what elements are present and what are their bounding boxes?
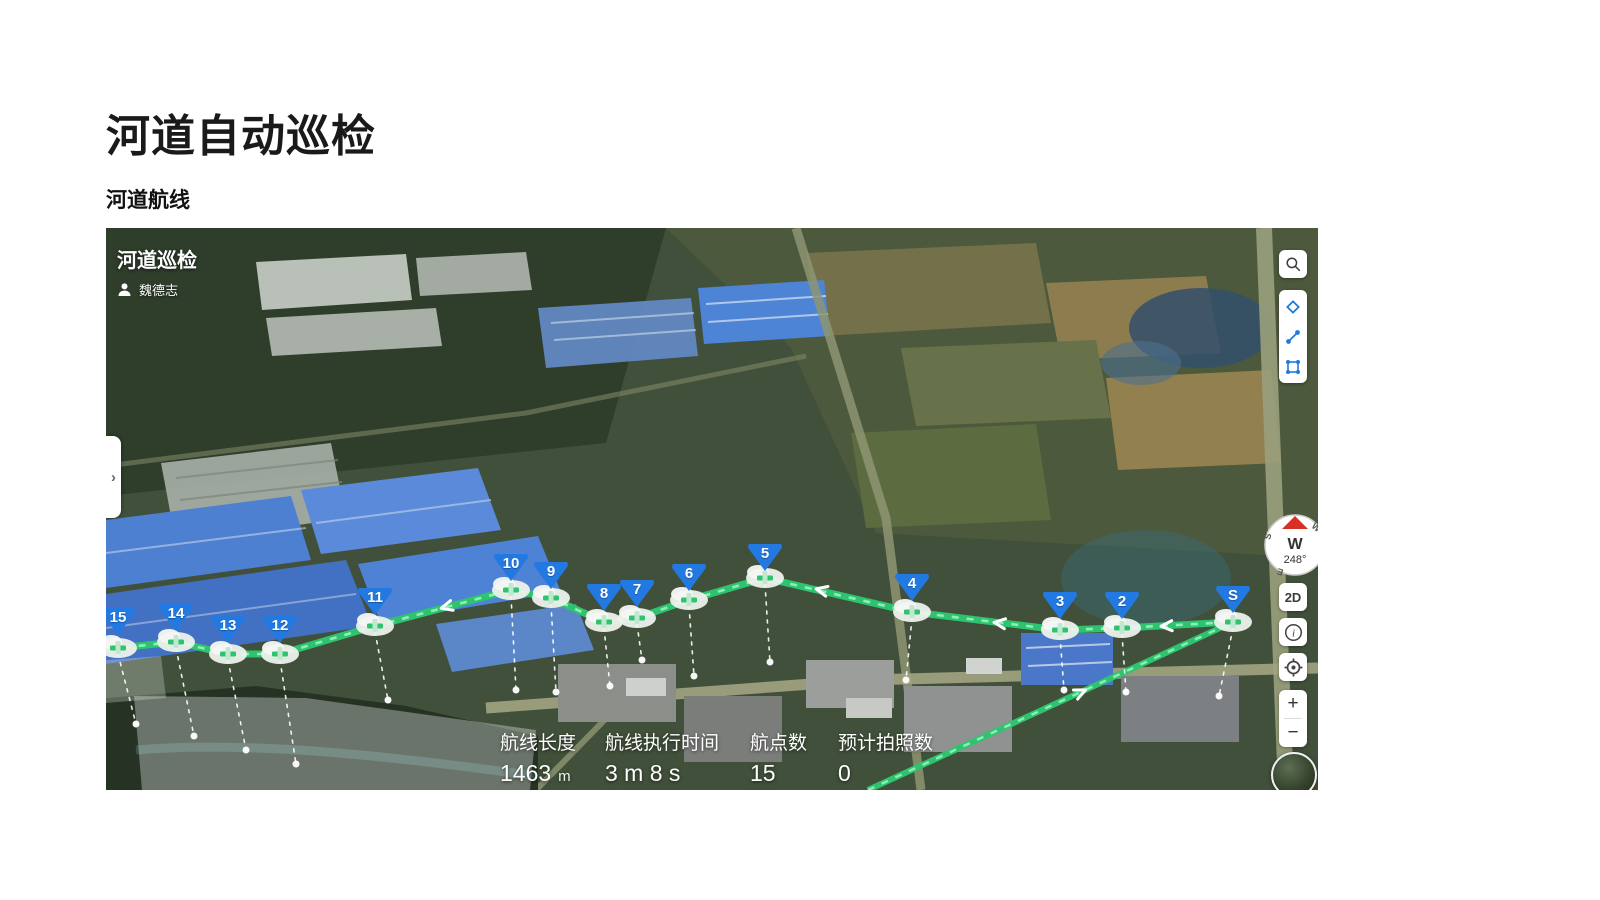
waypoint-route-node (116, 641, 121, 654)
page-title: 河道自动巡检 (106, 100, 376, 164)
waypoint-marker[interactable]: S (1216, 586, 1250, 616)
ground-projection-dot (1061, 687, 1068, 694)
ground-projection-dot (133, 721, 140, 728)
waypoint-route-node (174, 635, 179, 648)
waypoint-label: 14 (159, 605, 193, 622)
waypoint-route-node (1120, 621, 1125, 634)
view-mode-label: 2D (1285, 590, 1302, 605)
waypoint-route-node (1058, 623, 1063, 636)
mission-owner: 魏德志 (117, 280, 197, 299)
waypoint-route-node (687, 593, 692, 606)
mission-header: 河道巡检 魏德志 (117, 244, 197, 299)
locate-button[interactable] (1279, 653, 1307, 681)
ground-projection-dot (513, 687, 520, 694)
info-icon: i (1284, 623, 1303, 642)
waypoint-marker[interactable]: 4 (895, 574, 929, 604)
map-canvas[interactable]: 河道巡检 魏德志 航线长度 1463m 航线执行时间 3 m 8 s 航点数 1… (106, 228, 1318, 790)
zoom-in-button[interactable]: + (1279, 690, 1307, 718)
waypoint-label: 6 (672, 565, 706, 582)
waypoint-label: 11 (358, 589, 392, 606)
stat-waypoint-count: 航点数 15 (750, 728, 807, 787)
stat-value: 1463m (500, 760, 576, 787)
ground-projection-dot (243, 747, 250, 754)
stat-route-length: 航线长度 1463m (500, 728, 576, 787)
ground-projection-dot (903, 677, 910, 684)
waypoint-label: 8 (587, 585, 621, 602)
waypoint-label: 9 (534, 563, 568, 580)
waypoint-marker[interactable]: 11 (358, 588, 392, 618)
mission-owner-name: 魏德志 (139, 280, 178, 299)
waypoint-marker[interactable]: 10 (494, 554, 528, 584)
waypoint-marker[interactable]: 9 (534, 562, 568, 592)
waypoint-route-node (373, 619, 378, 632)
stat-photo-count: 预计拍照数 0 (838, 728, 933, 787)
stat-label: 预计拍照数 (838, 728, 933, 755)
info-button[interactable]: i (1279, 618, 1307, 646)
waypoint-marker[interactable]: 15 (106, 608, 135, 638)
waypoint-label: 15 (106, 609, 135, 626)
compass-control[interactable]: W S E W 248° (1262, 512, 1318, 578)
zoom-panel: + − (1279, 690, 1307, 747)
waypoint-label: 12 (263, 617, 297, 634)
chevron-right-icon: › (111, 469, 116, 486)
search-button[interactable] (1279, 250, 1307, 278)
ground-projection-dot (553, 689, 560, 696)
waypoint-route-node (226, 647, 231, 660)
waypoint-marker[interactable]: 5 (748, 544, 782, 574)
stat-value: 0 (838, 760, 933, 787)
compass-heading: 248° (1284, 554, 1307, 566)
waypoint-label: 3 (1043, 593, 1077, 610)
waypoint-route-node (509, 583, 514, 596)
waypoint-label: 2 (1105, 593, 1139, 610)
waypoint-marker[interactable]: 6 (672, 564, 706, 594)
waypoint-marker[interactable]: 7 (620, 580, 654, 610)
ground-projection-dot (1123, 689, 1130, 696)
ground-projection-dot (293, 761, 300, 768)
polygon-draw-icon (1284, 358, 1302, 376)
ground-projection-dot (191, 733, 198, 740)
stat-label: 航线执行时间 (605, 728, 719, 755)
waypoint-marker[interactable]: 3 (1043, 592, 1077, 622)
diamond-icon (1284, 298, 1302, 316)
waypoint-label: 5 (748, 545, 782, 562)
zoom-out-button[interactable]: − (1279, 719, 1307, 747)
waypoint-route-node (278, 647, 283, 660)
waypoint-route-node (635, 611, 640, 624)
compass-cardinal: W (1287, 536, 1303, 553)
stat-value: 3 m 8 s (605, 760, 719, 787)
svg-text:i: i (1291, 627, 1294, 639)
mission-title: 河道巡检 (117, 244, 197, 273)
waypoint-label: 7 (620, 581, 654, 598)
waypoint-marker[interactable]: 14 (159, 604, 193, 634)
polyline-draw-icon (1284, 328, 1302, 346)
waypoint-label: S (1216, 587, 1250, 604)
waypoint-route-node (549, 591, 554, 604)
waypoint-label: 13 (211, 617, 245, 634)
ground-projection-dot (767, 659, 774, 666)
ground-projection-dot (385, 697, 392, 704)
ground-projection-dot (607, 683, 614, 690)
waypoint-draw-button[interactable] (1279, 293, 1307, 320)
stat-value: 15 (750, 760, 807, 787)
stat-label: 航线长度 (500, 728, 576, 755)
waypoint-marker[interactable]: 8 (587, 584, 621, 614)
waypoint-route-node (1231, 615, 1236, 628)
waypoint-marker[interactable]: 13 (211, 616, 245, 646)
ground-projection-dot (1216, 693, 1223, 700)
search-icon (1284, 255, 1302, 273)
ground-projection-dot (639, 657, 646, 664)
waypoint-marker[interactable]: 12 (263, 616, 297, 646)
polyline-draw-button[interactable] (1279, 323, 1307, 350)
person-icon (117, 282, 132, 297)
globe-layer-button[interactable] (1271, 752, 1317, 790)
polygon-draw-button[interactable] (1279, 353, 1307, 380)
stat-label: 航点数 (750, 728, 807, 755)
map-scene (106, 228, 1318, 790)
draw-tools-panel (1279, 290, 1307, 383)
waypoint-marker[interactable]: 2 (1105, 592, 1139, 622)
view-mode-2d-button[interactable]: 2D (1279, 583, 1307, 611)
sidebar-expand-button[interactable]: › (106, 436, 121, 518)
waypoint-route-node (602, 615, 607, 628)
ground-projection-dot (691, 673, 698, 680)
stat-execution-time: 航线执行时间 3 m 8 s (605, 728, 719, 787)
locate-icon (1284, 658, 1303, 677)
waypoint-route-node (910, 605, 915, 618)
page-subtitle: 河道航线 (106, 184, 190, 214)
waypoint-label: 10 (494, 555, 528, 572)
waypoint-label: 4 (895, 575, 929, 592)
